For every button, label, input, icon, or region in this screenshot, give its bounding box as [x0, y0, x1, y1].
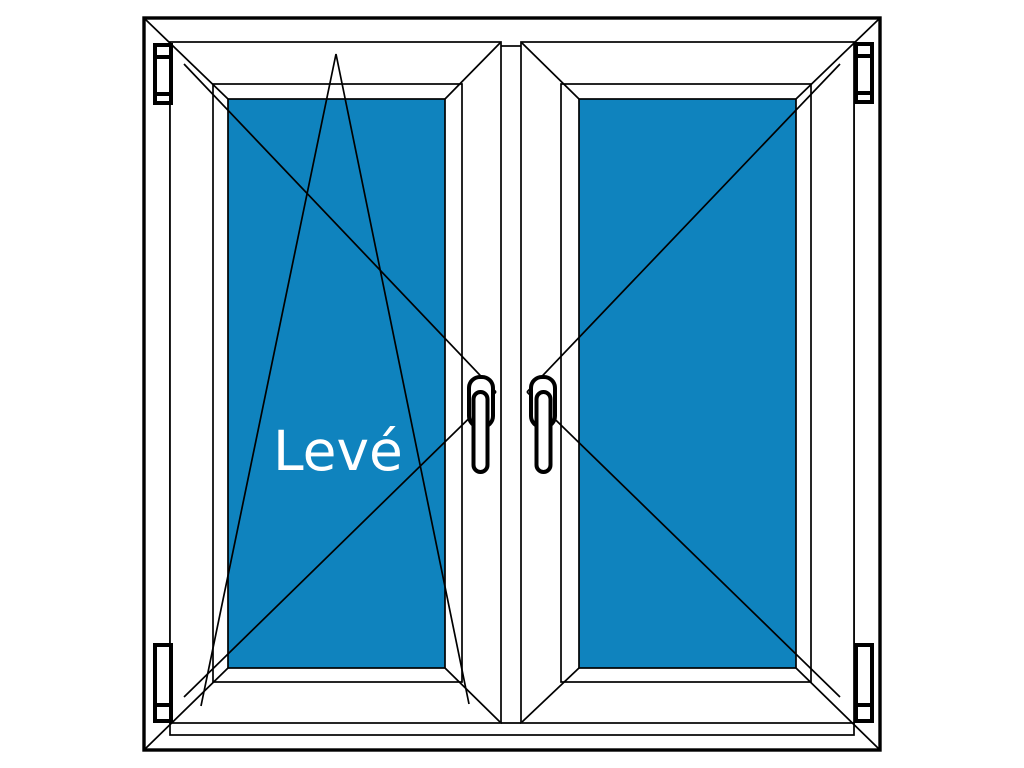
window-product-drawing: Levé: [0, 0, 1024, 768]
hinge-bottom-left-icon: [155, 645, 171, 721]
hinge-body: [155, 645, 171, 721]
hinge-top-left-icon: [155, 45, 171, 103]
orientation-label: Levé: [273, 419, 403, 483]
hinge-top-right-icon: [856, 44, 872, 102]
handle-lever-icon: [537, 392, 551, 472]
glass-pane-left: [228, 99, 445, 668]
window-diagram: Levé: [0, 0, 1024, 768]
hinge-body: [856, 645, 872, 721]
handle-lever-icon: [474, 392, 488, 472]
glass-pane-right: [579, 99, 796, 668]
window-handle-right: [531, 377, 555, 472]
hinge-bottom-right-icon: [856, 645, 872, 721]
window-handle-left: [469, 377, 493, 472]
